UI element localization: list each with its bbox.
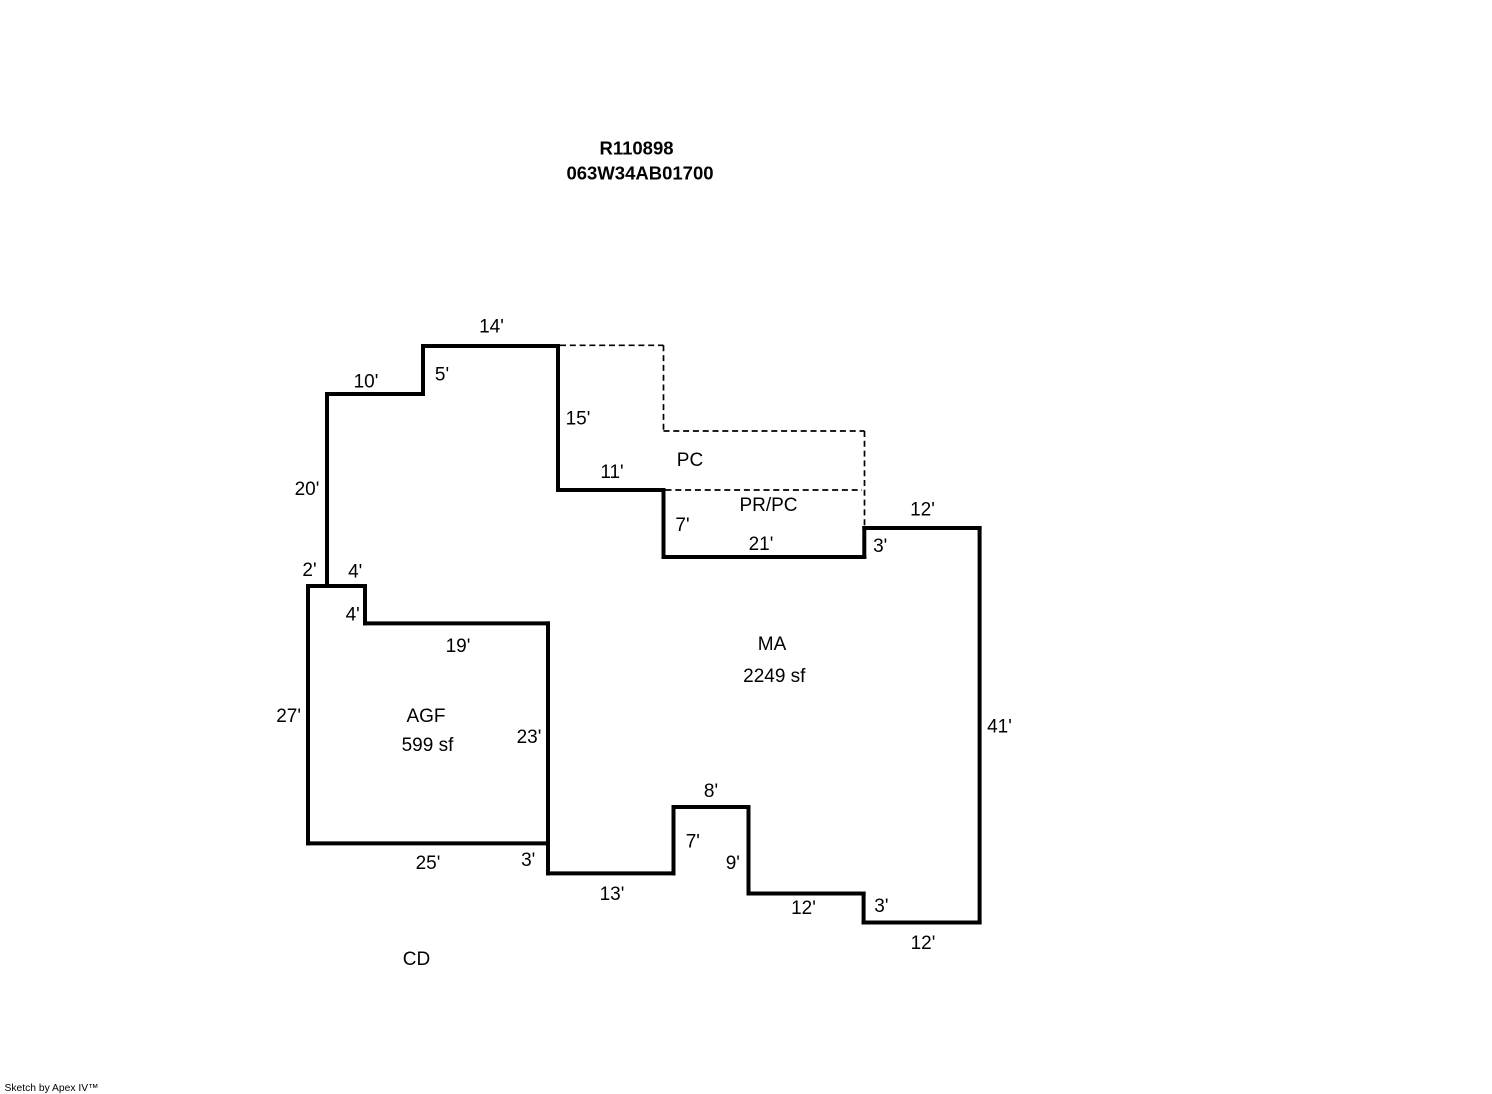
svg-text:3': 3' — [873, 536, 887, 557]
svg-text:MA: MA — [758, 634, 787, 655]
svg-text:15': 15' — [566, 408, 591, 429]
svg-text:41': 41' — [987, 717, 1012, 738]
svg-text:3': 3' — [521, 850, 535, 871]
svg-text:20': 20' — [295, 479, 320, 500]
svg-text:12': 12' — [911, 933, 936, 954]
svg-text:25': 25' — [416, 853, 441, 874]
svg-text:2': 2' — [302, 560, 316, 581]
svg-text:063W34AB01700: 063W34AB01700 — [566, 162, 713, 183]
svg-text:PR/PC: PR/PC — [739, 495, 797, 516]
svg-text:8': 8' — [704, 781, 718, 802]
svg-text:3': 3' — [874, 896, 888, 917]
svg-text:7': 7' — [686, 832, 700, 853]
svg-text:4': 4' — [346, 604, 360, 625]
svg-text:19': 19' — [446, 636, 471, 657]
svg-text:10': 10' — [354, 372, 379, 393]
svg-text:R110898: R110898 — [599, 138, 673, 159]
svg-text:Sketch by Apex IV™: Sketch by Apex IV™ — [5, 1083, 99, 1094]
svg-text:PC: PC — [677, 450, 703, 471]
svg-text:27': 27' — [276, 706, 301, 727]
svg-text:21': 21' — [749, 534, 774, 555]
svg-text:11': 11' — [600, 462, 623, 483]
svg-text:599 sf: 599 sf — [402, 735, 454, 756]
svg-text:12': 12' — [910, 499, 935, 520]
svg-text:9': 9' — [726, 853, 740, 874]
svg-text:13': 13' — [600, 884, 625, 905]
svg-text:5': 5' — [435, 365, 449, 386]
svg-text:14': 14' — [479, 317, 504, 338]
svg-text:12': 12' — [791, 898, 816, 919]
svg-text:AGF: AGF — [406, 706, 445, 727]
svg-text:4': 4' — [348, 562, 362, 583]
svg-text:2249 sf: 2249 sf — [743, 666, 806, 687]
svg-text:23': 23' — [517, 727, 542, 748]
svg-text:CD: CD — [403, 949, 430, 970]
svg-text:7': 7' — [675, 515, 689, 536]
